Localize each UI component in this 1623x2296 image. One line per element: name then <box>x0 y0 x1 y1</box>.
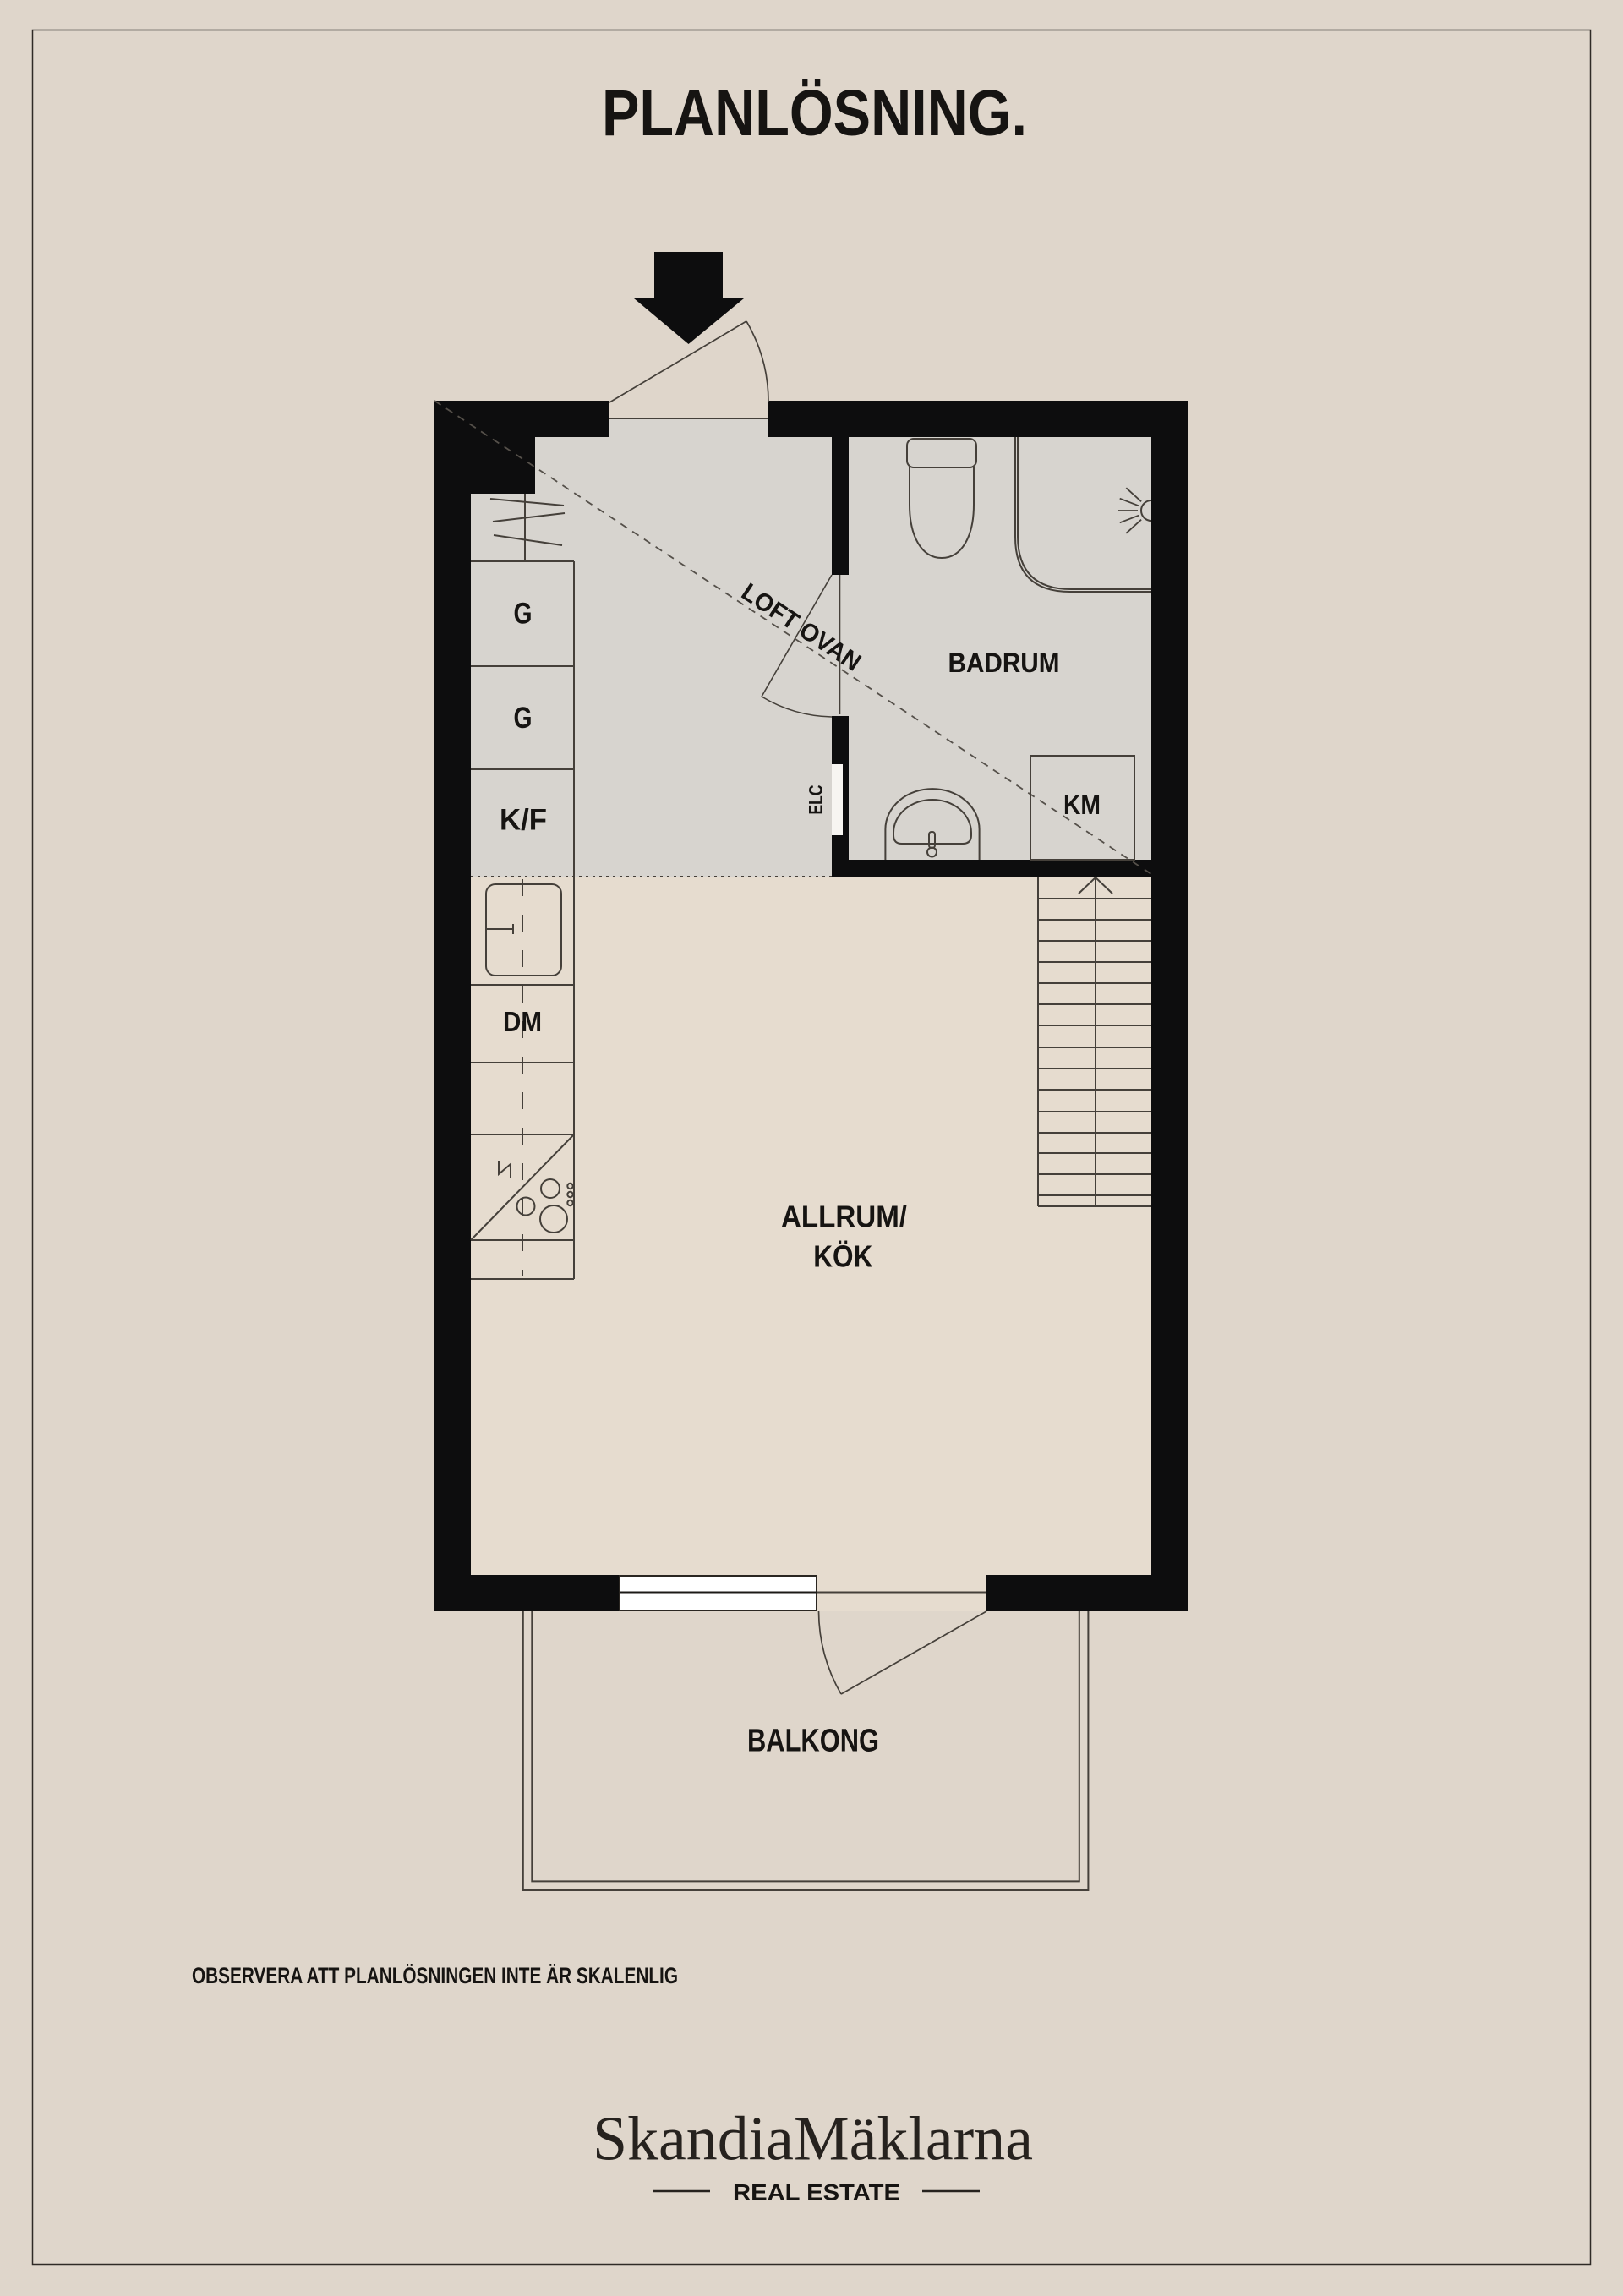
svg-text:SkandiaMäklarna: SkandiaMäklarna <box>593 2104 1033 2173</box>
svg-text:G: G <box>514 598 533 631</box>
svg-text:ALLRUM/: ALLRUM/ <box>781 1200 907 1234</box>
svg-text:G: G <box>514 702 533 735</box>
svg-text:DM: DM <box>503 1007 542 1038</box>
svg-text:KM: KM <box>1063 790 1101 820</box>
svg-text:PLANLÖSNING.: PLANLÖSNING. <box>602 77 1027 150</box>
svg-text:KÖK: KÖK <box>813 1238 872 1273</box>
svg-text:BADRUM: BADRUM <box>948 648 1060 678</box>
svg-text:REAL ESTATE: REAL ESTATE <box>733 2179 900 2205</box>
svg-text:K/F: K/F <box>500 804 547 837</box>
svg-text:OBSERVERA ATT PLANLÖSNINGEN IN: OBSERVERA ATT PLANLÖSNINGEN INTE ÄR SKAL… <box>192 1963 678 1988</box>
svg-text:BALKONG: BALKONG <box>747 1723 879 1759</box>
svg-text:ELC: ELC <box>805 785 827 815</box>
